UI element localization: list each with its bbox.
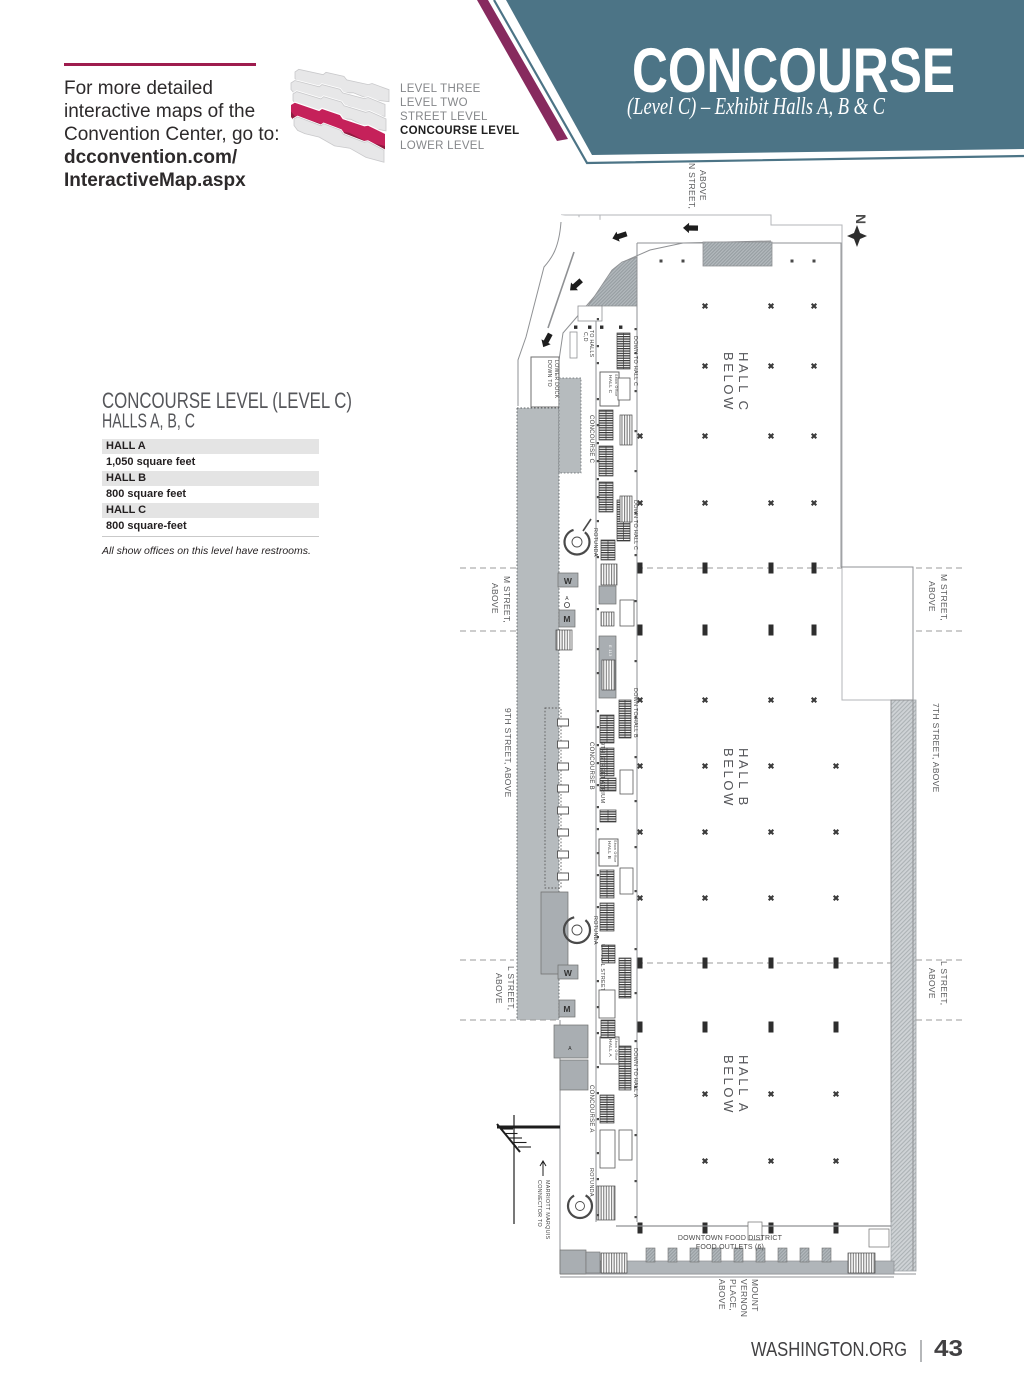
svg-text:MOUNT: MOUNT: [750, 1279, 760, 1312]
svg-text:A: A: [568, 1046, 572, 1052]
svg-text:BELOW: BELOW: [721, 352, 736, 412]
svg-text:Show Office: Show Office: [614, 374, 618, 397]
svg-text:Show Office: Show Office: [613, 840, 617, 863]
svg-text:BELOW: BELOW: [721, 1055, 736, 1115]
svg-text:DOWN TO HALL B: DOWN TO HALL B: [632, 688, 638, 738]
svg-text:7TH STREET, ABOVE: 7TH STREET, ABOVE: [931, 703, 941, 793]
svg-text:C,D: C,D: [582, 332, 588, 342]
svg-text:HALL B: HALL B: [606, 841, 612, 859]
svg-text:BELOW: BELOW: [721, 748, 736, 808]
svg-text:W: W: [564, 576, 573, 586]
svg-text:CONCOURSE B: CONCOURSE B: [588, 742, 594, 790]
svg-text:ABOVE: ABOVE: [698, 170, 708, 201]
svg-text:ABOVE: ABOVE: [490, 583, 500, 614]
svg-text:MARRIOTT MARQUIS: MARRIOTT MARQUIS: [544, 1180, 550, 1240]
svg-text:ROTUNDA: ROTUNDA: [588, 1168, 594, 1197]
svg-text:HALL A: HALL A: [607, 1039, 613, 1057]
svg-text:CONCOURSE C: CONCOURSE C: [588, 415, 594, 464]
svg-text:HALL C: HALL C: [607, 375, 613, 394]
svg-text:HALL C: HALL C: [736, 352, 751, 413]
svg-text:ABOVE: ABOVE: [494, 973, 504, 1004]
svg-text:ABOVE: ABOVE: [717, 1279, 727, 1310]
svg-text:CONNECTOR TO: CONNECTOR TO: [536, 1180, 542, 1227]
svg-text:L STREET,: L STREET,: [506, 966, 516, 1010]
svg-text:9TH STREET ATRIUM: 9TH STREET ATRIUM: [599, 742, 605, 803]
svg-text:ABOVE: ABOVE: [927, 581, 937, 612]
svg-text:N STREET,: N STREET,: [687, 163, 697, 209]
svg-text:M: M: [563, 614, 570, 624]
svg-text:DOWN TO HALL C: DOWN TO HALL C: [632, 336, 638, 386]
svg-text:VERNON: VERNON: [739, 1279, 749, 1317]
svg-text:WASHINGTON.ORG: WASHINGTON.ORG: [751, 1339, 907, 1361]
svg-text:DOWN TO HALL A: DOWN TO HALL A: [632, 1048, 638, 1098]
svg-text:LOWER DOCK: LOWER DOCK: [553, 360, 559, 399]
svg-text:W: W: [564, 968, 573, 978]
svg-text:ROTUNDA: ROTUNDA: [592, 916, 598, 945]
svg-text:A: A: [565, 596, 569, 602]
svg-text:CONCOURSE LEVEL (LEVEL C): CONCOURSE LEVEL (LEVEL C): [102, 388, 352, 413]
svg-text:CONCOURSE A: CONCOURSE A: [588, 1085, 594, 1133]
svg-text:(Level C) – Exhibit Halls A, B: (Level C) – Exhibit Halls A, B & C: [627, 94, 886, 120]
svg-text:M STREET,: M STREET,: [939, 574, 949, 621]
svg-text:N: N: [853, 214, 869, 224]
svg-text:M STREET,: M STREET,: [502, 576, 512, 623]
svg-text:M: M: [563, 1004, 570, 1014]
svg-text:Show Office: Show Office: [614, 1038, 618, 1061]
svg-text:E 113: E 113: [608, 645, 613, 657]
svg-text:HALL A: HALL A: [736, 1055, 751, 1114]
svg-text:HALLS A, B, C: HALLS A, B, C: [102, 411, 195, 433]
svg-text:DOWNTOWN FOOD DISTRICT: DOWNTOWN FOOD DISTRICT: [678, 1235, 783, 1242]
svg-text:L STREET,: L STREET,: [939, 961, 949, 1005]
svg-text:9TH STREET, ABOVE: 9TH STREET, ABOVE: [503, 708, 513, 798]
svg-text:ABOVE: ABOVE: [927, 968, 937, 999]
svg-text:ROTUNDA: ROTUNDA: [592, 528, 598, 557]
svg-text:HALL B: HALL B: [736, 748, 751, 808]
svg-text:DOWN TO: DOWN TO: [546, 360, 552, 387]
svg-text:43: 43: [934, 1335, 963, 1361]
svg-text:DOWN TO HALL C: DOWN TO HALL C: [632, 500, 638, 550]
svg-text:FOOD OUTLETS (6): FOOD OUTLETS (6): [696, 1244, 764, 1251]
svg-text:PLACE,: PLACE,: [728, 1279, 738, 1311]
